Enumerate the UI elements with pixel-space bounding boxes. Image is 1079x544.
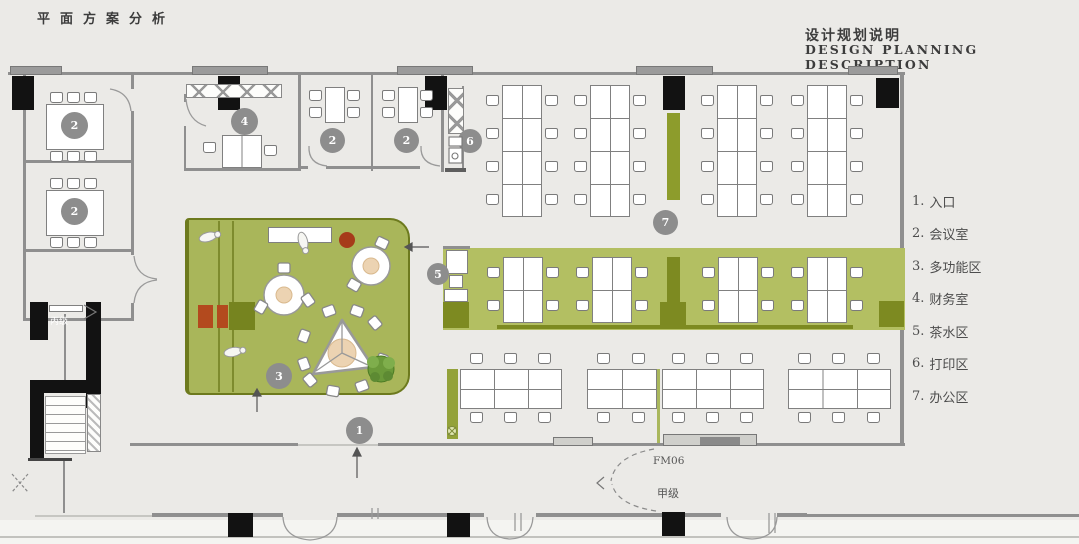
desk-cluster [587, 369, 657, 409]
chair [597, 412, 610, 423]
printer-icon [449, 137, 462, 163]
chair [470, 353, 483, 364]
desk-cluster [460, 369, 562, 409]
chair [798, 412, 811, 423]
desk-cluster [592, 257, 632, 323]
chair [546, 300, 559, 311]
desk-cluster [503, 257, 543, 323]
chair [633, 128, 646, 139]
chair [701, 161, 714, 172]
round-table-1 [254, 263, 316, 315]
chair [487, 300, 500, 311]
chair [791, 161, 804, 172]
chair [706, 412, 719, 423]
floor-plan-canvas: 平面方案分析 设计规划说明 DESIGN PLANNING DESCRIPTIO… [0, 0, 1079, 544]
chair [545, 128, 558, 139]
door-arcs [110, 89, 777, 540]
chair [791, 95, 804, 106]
chair [538, 412, 551, 423]
chair [486, 128, 499, 139]
desk-cluster [717, 85, 757, 217]
chair [576, 267, 589, 278]
chair [740, 412, 753, 423]
chair [702, 267, 715, 278]
chair [850, 267, 863, 278]
chair [760, 194, 773, 205]
chair [850, 300, 863, 311]
chair [486, 161, 499, 172]
chair [538, 353, 551, 364]
chair [486, 194, 499, 205]
chair [672, 412, 685, 423]
chair [633, 194, 646, 205]
chair [761, 300, 774, 311]
chair [635, 300, 648, 311]
chair [760, 95, 773, 106]
chair [791, 194, 804, 205]
chair [574, 161, 587, 172]
desk-cluster [590, 85, 630, 217]
plant-icon [448, 427, 457, 436]
chair [574, 95, 587, 106]
desk-cluster [807, 85, 847, 217]
tree [367, 356, 395, 382]
chair [545, 95, 558, 106]
chair [632, 412, 645, 423]
chair [545, 194, 558, 205]
chair [486, 95, 499, 106]
chair [791, 300, 804, 311]
fire-door-swing-dashed [12, 449, 656, 511]
chair [850, 128, 863, 139]
desk-cluster [788, 369, 891, 409]
chair [487, 267, 500, 278]
chair [832, 412, 845, 423]
chair [701, 128, 714, 139]
chair [761, 267, 774, 278]
chair [701, 194, 714, 205]
triangle-table [297, 304, 389, 397]
chair [791, 267, 804, 278]
desk-cluster [718, 257, 758, 323]
chair [760, 161, 773, 172]
chair [791, 128, 804, 139]
chair [672, 353, 685, 364]
round-table-2 [346, 236, 390, 292]
chair [850, 194, 863, 205]
desk-cluster [662, 369, 764, 409]
chair [850, 161, 863, 172]
chair [867, 412, 880, 423]
chair [867, 353, 880, 364]
chair [470, 412, 483, 423]
chair [546, 267, 559, 278]
chair [850, 95, 863, 106]
chair [574, 194, 587, 205]
chair [504, 412, 517, 423]
chair [632, 353, 645, 364]
chair [702, 300, 715, 311]
chair [740, 353, 753, 364]
chair [545, 161, 558, 172]
chair [635, 267, 648, 278]
chair [798, 353, 811, 364]
chair [504, 353, 517, 364]
chair [576, 300, 589, 311]
desk-cluster [807, 257, 847, 323]
desk-cluster [502, 85, 542, 217]
chair [701, 95, 714, 106]
chair [760, 128, 773, 139]
chair [633, 95, 646, 106]
chair [574, 128, 587, 139]
chair [832, 353, 845, 364]
chair [633, 161, 646, 172]
chair [706, 353, 719, 364]
chair [597, 353, 610, 364]
